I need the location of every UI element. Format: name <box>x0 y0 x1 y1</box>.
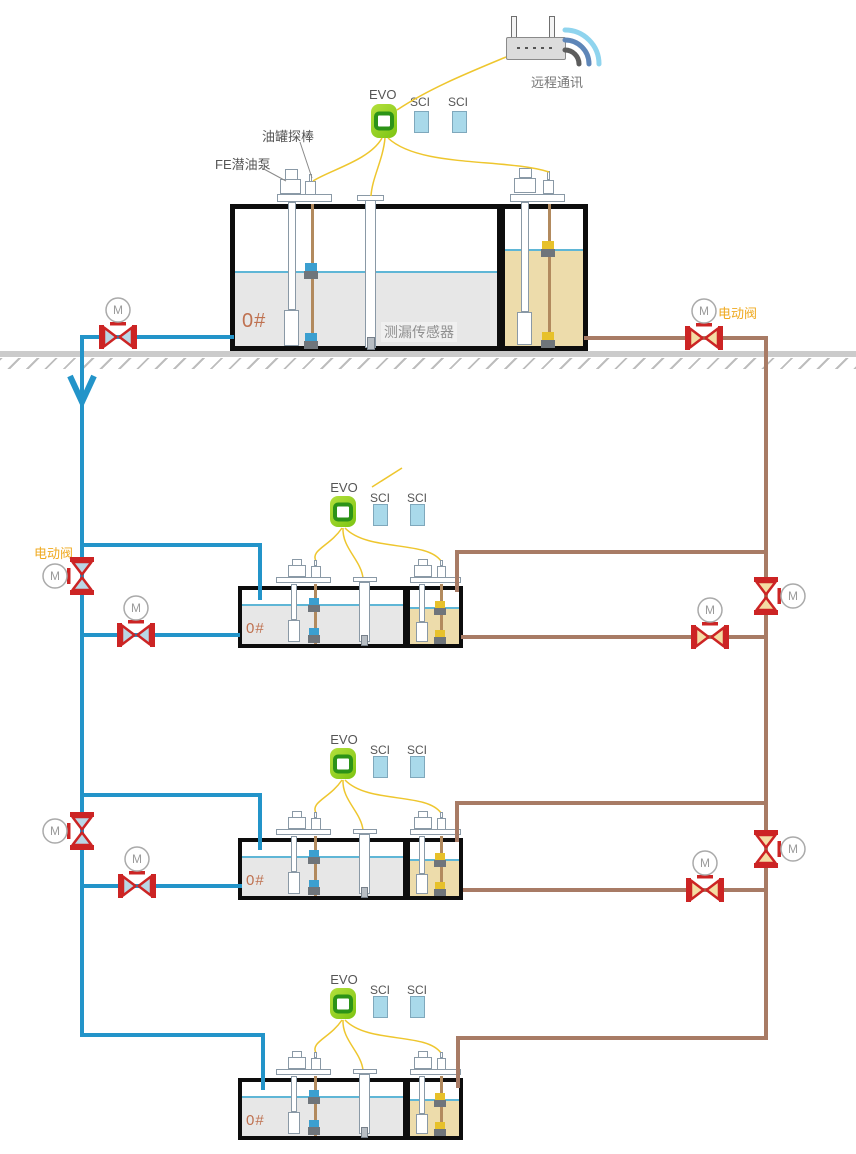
motor-valve: M <box>686 851 724 902</box>
evo-label: EVO <box>327 732 361 747</box>
manhole-flange <box>510 194 565 202</box>
pump-motor <box>280 179 301 194</box>
router-leds <box>517 47 555 49</box>
pump-drop-tube <box>291 584 297 620</box>
probe-float <box>309 1120 319 1127</box>
motor-letter: M <box>699 304 709 318</box>
leak-sensor-probe <box>361 887 368 898</box>
sci-module <box>410 756 425 778</box>
motor-circle <box>43 564 67 588</box>
fuel-level-gray <box>242 604 403 644</box>
manhole-flange <box>276 829 331 835</box>
motor-valve: M <box>99 298 137 349</box>
probe-wire <box>345 780 441 813</box>
probe-wire <box>388 138 549 172</box>
station-3: EVO SCI SCI 0# <box>230 732 540 907</box>
probe-float <box>542 332 554 340</box>
probe-wire <box>315 528 342 561</box>
leak-sensor-tube <box>359 834 370 894</box>
leak-sensor-wire <box>343 528 363 578</box>
manhole-flange <box>410 577 461 583</box>
station-4: EVO SCI SCI 0# <box>230 972 540 1147</box>
fe-pump-label: FE潜油泵 <box>215 154 271 173</box>
submersible-pump <box>288 620 300 642</box>
probe-pin <box>547 171 550 180</box>
motor-circle <box>43 819 67 843</box>
motor-valve: M <box>754 830 805 868</box>
probe-head <box>311 1058 321 1070</box>
submersible-pump <box>416 1114 428 1134</box>
motor-letter: M <box>113 303 123 317</box>
motor-valve: M <box>43 557 94 595</box>
sci-label: SCI <box>410 95 430 109</box>
manhole-flange <box>410 829 461 835</box>
motor-circle <box>693 851 717 875</box>
sci-label: SCI <box>407 983 427 997</box>
sci-module <box>452 111 467 133</box>
leak-sensor-label: 测漏传感器 <box>381 322 457 342</box>
probe-shaft <box>548 204 551 347</box>
submersible-pump <box>416 874 428 894</box>
motor-circle <box>125 847 149 871</box>
leak-sensor-wire <box>371 138 385 196</box>
probe-float <box>308 857 320 864</box>
motor-circle <box>692 299 716 323</box>
evo-console <box>371 104 397 138</box>
probe-float <box>305 263 317 271</box>
sci-module <box>373 996 388 1018</box>
sci-label: SCI <box>370 743 390 757</box>
diagram-canvas: 远程通讯 EVO SCI SCI 油罐探棒 FE潜油泵 电动阀 电动阀 0# 测… <box>0 0 856 1154</box>
sci-label: SCI <box>407 743 427 757</box>
sci-label: SCI <box>370 491 390 505</box>
evo-label: EVO <box>369 87 396 102</box>
probe-float <box>435 853 445 860</box>
leak-sensor-probe <box>367 337 375 350</box>
motor-letter: M <box>788 842 798 856</box>
probe-float <box>308 1097 320 1104</box>
evo-label: EVO <box>327 972 361 987</box>
leak-sensor-tube <box>359 1074 370 1134</box>
evo-screen <box>333 994 353 1013</box>
motor-valve: M <box>754 577 805 615</box>
pump-motor <box>414 565 432 577</box>
probe-wire <box>315 780 342 813</box>
fuel-grade-label: 0# <box>246 1112 265 1129</box>
probe-float <box>435 630 445 637</box>
probe-head <box>543 180 554 194</box>
probe-wire <box>315 1020 342 1053</box>
probe-float <box>435 882 445 889</box>
probe-head <box>305 181 316 195</box>
pump-motor-cap <box>519 168 532 178</box>
pump-drop-tube <box>521 202 529 312</box>
sci-label: SCI <box>407 491 427 505</box>
evo-console <box>330 988 356 1019</box>
submersible-pump <box>288 1112 300 1134</box>
wifi-icon <box>565 30 599 64</box>
probe-head <box>437 818 446 830</box>
evo-screen <box>374 112 394 131</box>
leak-sensor-wire <box>343 1020 363 1070</box>
remote-comm-label: 远程通讯 <box>531 72 583 91</box>
manhole-flange <box>276 1069 331 1075</box>
probe-float <box>308 887 320 895</box>
probe-float <box>434 889 446 896</box>
pump-motor <box>288 1057 306 1069</box>
probe-float <box>434 608 446 615</box>
manhole-flange <box>277 194 332 202</box>
pump-motor <box>414 817 432 829</box>
pump-motor <box>514 178 536 193</box>
probe-float <box>541 340 555 348</box>
evo-label: EVO <box>327 480 361 495</box>
motor-letter: M <box>131 601 141 615</box>
fuel-level-gray <box>242 856 403 896</box>
probe-float <box>435 1093 445 1100</box>
fuel-grade-label: 0# <box>242 310 266 333</box>
electric-valve-label: 电动阀 <box>34 543 73 562</box>
probe-float <box>309 850 319 857</box>
fuel-grade-label: 0# <box>246 872 265 889</box>
sci-module <box>410 504 425 526</box>
sci-label: SCI <box>448 95 468 109</box>
probe-float <box>309 880 319 887</box>
motor-letter: M <box>700 856 710 870</box>
probe-float <box>309 1090 319 1097</box>
underground-tank <box>238 586 463 648</box>
underground-tank <box>238 838 463 900</box>
sci-module <box>373 756 388 778</box>
sci-module <box>373 504 388 526</box>
probe-float <box>435 1122 445 1129</box>
submersible-pump <box>284 310 299 346</box>
pump-drop-tube <box>419 1076 425 1114</box>
probe-float <box>434 1100 446 1107</box>
pump-motor <box>288 565 306 577</box>
motor-valve: M <box>117 596 155 647</box>
motor-letter: M <box>132 852 142 866</box>
motor-circle <box>124 596 148 620</box>
probe-float <box>434 1129 446 1136</box>
submersible-pump <box>288 872 300 894</box>
pump-drop-tube <box>419 584 425 622</box>
probe-wire <box>345 1020 441 1053</box>
ground-surface <box>0 351 856 357</box>
manhole-flange <box>410 1069 461 1075</box>
leak-sensor-probe <box>361 1127 368 1138</box>
electric-valve-label: 电动阀 <box>718 303 757 322</box>
submersible-pump <box>416 622 428 642</box>
probe-float <box>541 249 555 257</box>
sci-module <box>414 111 429 133</box>
probe-leader-line <box>300 142 312 178</box>
probe-float <box>434 860 446 867</box>
probe-float <box>309 628 319 635</box>
tank-divider <box>403 1082 410 1136</box>
tank-probe-label: 油罐探棒 <box>262 126 314 145</box>
probe-head <box>311 566 321 578</box>
motor-circle <box>781 837 805 861</box>
motor-letter: M <box>705 603 715 617</box>
pump-drop-tube <box>291 1076 297 1112</box>
probe-head <box>437 1058 446 1070</box>
probe-float <box>308 1127 320 1135</box>
tank-divider <box>403 842 410 896</box>
leak-sensor-tube <box>365 200 376 348</box>
router <box>506 37 566 60</box>
flow-arrow <box>70 376 94 402</box>
motor-valve: M <box>43 812 94 850</box>
pump-motor <box>288 817 306 829</box>
pump-drop-tube <box>419 836 425 874</box>
tank-divider <box>497 209 505 346</box>
evo-console <box>330 748 356 779</box>
motor-letter: M <box>50 824 60 838</box>
probe-float <box>435 601 445 608</box>
probe-float <box>305 333 317 341</box>
motor-letter: M <box>788 589 798 603</box>
probe-float <box>308 605 320 612</box>
motor-circle <box>698 598 722 622</box>
motor-letter: M <box>50 569 60 583</box>
manhole-flange <box>276 577 331 583</box>
evo-console <box>330 496 356 527</box>
motor-valve: M <box>691 598 729 649</box>
pump-drop-tube <box>288 202 296 310</box>
fuel-level-gray <box>242 1096 403 1136</box>
evo-screen <box>333 754 353 773</box>
submersible-pump <box>517 312 532 345</box>
probe-head <box>437 566 446 578</box>
motor-circle <box>106 298 130 322</box>
pump-drop-tube <box>291 836 297 872</box>
probe-float <box>308 635 320 643</box>
probe-head <box>311 818 321 830</box>
pump-motor <box>414 1057 432 1069</box>
motor-valve: M <box>118 847 156 898</box>
probe-float <box>304 341 318 349</box>
probe-float <box>304 271 318 279</box>
station-2: EVO SCI SCI 0# <box>230 480 540 655</box>
ground-hatching <box>0 358 856 369</box>
probe-float <box>309 598 319 605</box>
fuel-grade-label: 0# <box>246 620 265 637</box>
motor-circle <box>781 584 805 608</box>
sci-label: SCI <box>370 983 390 997</box>
tank-divider <box>403 590 410 644</box>
evo-screen <box>333 502 353 521</box>
leak-sensor-probe <box>361 635 368 646</box>
probe-wire <box>345 528 441 561</box>
leak-sensor-wire <box>343 780 363 830</box>
probe-float <box>542 241 554 249</box>
underground-tank <box>238 1078 463 1140</box>
probe-float <box>434 637 446 644</box>
leak-sensor-tube <box>359 582 370 642</box>
probe-wire <box>313 138 382 181</box>
sci-module <box>410 996 425 1018</box>
